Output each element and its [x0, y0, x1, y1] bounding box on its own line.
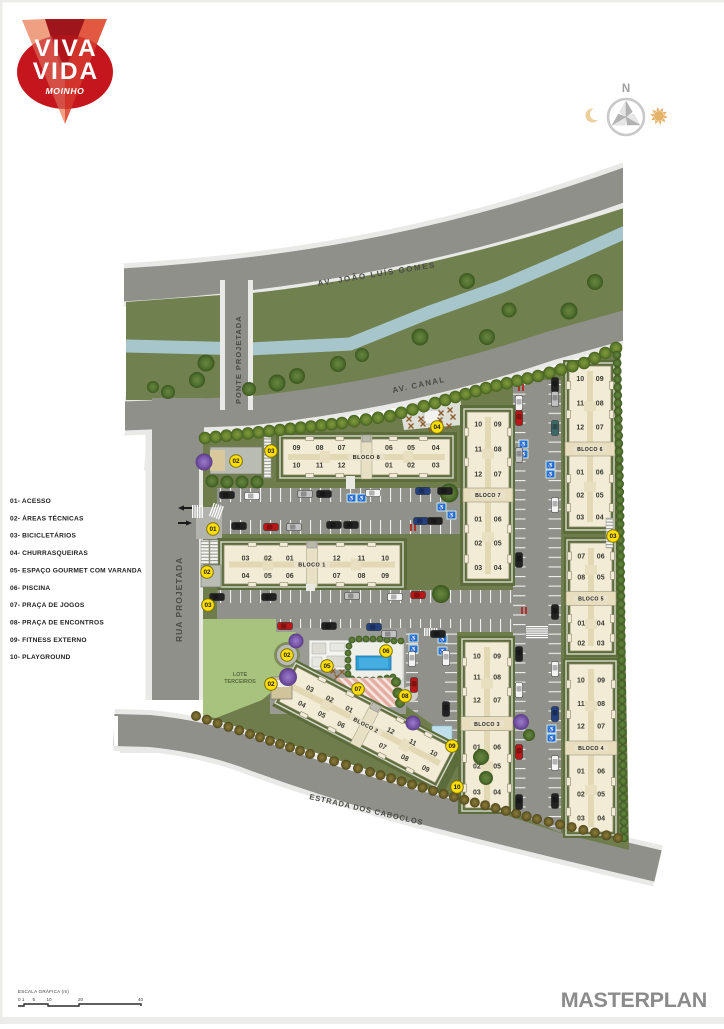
svg-text:10: 10	[381, 556, 389, 563]
svg-text:LOTE: LOTE	[233, 672, 248, 678]
svg-text:05: 05	[264, 573, 272, 580]
svg-text:01: 01	[385, 462, 393, 469]
svg-text:N: N	[622, 83, 630, 95]
svg-text:02: 02	[577, 640, 585, 647]
svg-text:05: 05	[596, 492, 604, 499]
svg-text:12: 12	[577, 723, 585, 730]
svg-text:BLOCO 1: BLOCO 1	[298, 563, 325, 569]
svg-text:04: 04	[433, 424, 441, 431]
svg-text:11: 11	[577, 400, 585, 407]
svg-text:04: 04	[597, 620, 605, 627]
svg-text:5: 5	[33, 997, 36, 1002]
svg-text:06: 06	[597, 553, 605, 560]
svg-text:12: 12	[473, 697, 481, 704]
svg-text:BLOCO 6: BLOCO 6	[577, 447, 603, 453]
svg-text:07: 07	[493, 697, 501, 704]
svg-text:20: 20	[78, 997, 84, 1002]
svg-text:02: 02	[267, 681, 275, 688]
svg-text:♿: ♿	[410, 635, 417, 642]
svg-text:01: 01	[286, 556, 294, 563]
svg-text:09- FITNESS EXTERNO: 09- FITNESS EXTERNO	[10, 637, 87, 644]
svg-text:04: 04	[494, 565, 502, 572]
svg-text:02- ÁREAS TÉCNICAS: 02- ÁREAS TÉCNICAS	[10, 513, 84, 522]
svg-text:♿: ♿	[547, 462, 554, 469]
svg-text:10: 10	[576, 376, 584, 383]
svg-text:10: 10	[293, 462, 301, 469]
svg-text:01: 01	[576, 469, 584, 476]
svg-text:♿: ♿	[548, 735, 555, 742]
svg-text:03: 03	[432, 462, 440, 469]
svg-text:11: 11	[358, 556, 366, 563]
svg-text:05: 05	[493, 763, 501, 770]
svg-text:12: 12	[576, 424, 584, 431]
svg-text:03: 03	[267, 448, 275, 455]
svg-text:BLOCO 8: BLOCO 8	[353, 455, 380, 461]
svg-text:12: 12	[474, 471, 482, 478]
svg-text:♿: ♿	[348, 495, 355, 502]
svg-text:0 1: 0 1	[18, 997, 25, 1002]
svg-text:06: 06	[596, 469, 604, 476]
svg-text:09: 09	[448, 743, 456, 750]
svg-text:10: 10	[577, 677, 585, 684]
svg-text:05: 05	[494, 540, 502, 547]
svg-text:11: 11	[473, 674, 481, 681]
svg-text:07: 07	[596, 424, 604, 431]
svg-text:08: 08	[493, 674, 501, 681]
svg-text:10- PLAYGROUND: 10- PLAYGROUND	[10, 654, 70, 661]
svg-text:06: 06	[385, 445, 393, 452]
svg-text:♿: ♿	[438, 504, 445, 511]
svg-text:06: 06	[286, 573, 294, 580]
svg-text:02: 02	[407, 462, 415, 469]
svg-text:09: 09	[293, 445, 301, 452]
svg-text:03: 03	[609, 533, 617, 540]
svg-text:PONTE PROJETADA: PONTE PROJETADA	[234, 315, 243, 404]
svg-text:10: 10	[47, 997, 53, 1002]
svg-text:01: 01	[577, 768, 585, 775]
svg-text:04: 04	[432, 445, 440, 452]
svg-text:12: 12	[333, 556, 341, 563]
svg-text:01: 01	[474, 516, 482, 523]
svg-text:08: 08	[358, 573, 366, 580]
svg-text:♿: ♿	[358, 495, 365, 502]
svg-text:08: 08	[401, 693, 409, 700]
svg-text:ESCALA GRÁFICA (m): ESCALA GRÁFICA (m)	[18, 988, 69, 994]
svg-text:04: 04	[596, 514, 604, 521]
svg-text:02: 02	[576, 492, 584, 499]
svg-text:07: 07	[354, 686, 362, 693]
svg-text:08- PRAÇA DE ENCONTROS: 08- PRAÇA DE ENCONTROS	[10, 620, 104, 627]
svg-text:06- PISCINA: 06- PISCINA	[10, 585, 50, 592]
svg-text:10: 10	[474, 421, 482, 428]
svg-text:12: 12	[338, 462, 346, 469]
svg-text:06: 06	[597, 768, 605, 775]
svg-text:11: 11	[316, 462, 324, 469]
svg-text:♿: ♿	[520, 441, 527, 448]
svg-text:♿: ♿	[548, 726, 555, 733]
svg-text:08: 08	[577, 574, 585, 581]
svg-text:11: 11	[475, 446, 483, 453]
svg-text:03: 03	[242, 556, 250, 563]
svg-text:BLOCO 4: BLOCO 4	[578, 746, 604, 752]
svg-text:03: 03	[597, 640, 605, 647]
svg-text:VIDA: VIDA	[33, 58, 100, 85]
svg-text:MOINHO: MOINHO	[46, 86, 85, 96]
svg-text:MASTERPLAN: MASTERPLAN	[561, 988, 707, 1012]
svg-text:09: 09	[494, 421, 502, 428]
svg-text:07- PRAÇA DE JOGOS: 07- PRAÇA DE JOGOS	[10, 602, 85, 609]
svg-text:05- ESPAÇO GOURMET COM VAR: 05- ESPAÇO GOURMET COM VARANDA	[10, 567, 142, 574]
svg-text:RUA PROJETADA: RUA PROJETADA	[174, 557, 184, 642]
svg-text:04- CHURRASQUEIRAS: 04- CHURRASQUEIRAS	[10, 550, 88, 557]
svg-text:05: 05	[597, 791, 605, 798]
svg-text:07: 07	[494, 471, 502, 478]
svg-text:TERCEIROS: TERCEIROS	[224, 679, 256, 685]
svg-text:03: 03	[473, 789, 481, 796]
svg-text:07: 07	[597, 723, 605, 730]
svg-text:09: 09	[596, 376, 604, 383]
svg-text:02: 02	[474, 540, 482, 547]
svg-text:05: 05	[407, 445, 415, 452]
svg-text:08: 08	[597, 701, 605, 708]
svg-text:05: 05	[597, 574, 605, 581]
svg-text:02: 02	[577, 791, 585, 798]
svg-text:40: 40	[138, 997, 144, 1002]
svg-text:05: 05	[323, 663, 331, 670]
svg-text:03: 03	[204, 602, 212, 609]
svg-text:02: 02	[264, 556, 272, 563]
svg-text:04: 04	[597, 815, 605, 822]
svg-text:02: 02	[232, 458, 240, 465]
svg-text:03- BICICLETÁRIOS: 03- BICICLETÁRIOS	[10, 531, 76, 540]
svg-text:10: 10	[473, 653, 481, 660]
svg-text:09: 09	[381, 573, 389, 580]
svg-text:01- ACESSO: 01- ACESSO	[10, 498, 51, 505]
svg-text:08: 08	[596, 400, 604, 407]
svg-text:BLOCO 5: BLOCO 5	[578, 597, 604, 603]
svg-text:03: 03	[577, 815, 585, 822]
svg-text:♿: ♿	[448, 512, 455, 519]
svg-text:06: 06	[382, 648, 390, 655]
svg-text:♿: ♿	[547, 471, 554, 478]
svg-text:09: 09	[597, 677, 605, 684]
svg-text:03: 03	[474, 565, 482, 572]
svg-text:BLOCO 3: BLOCO 3	[474, 722, 500, 728]
svg-text:03: 03	[576, 514, 584, 521]
svg-text:01: 01	[209, 526, 217, 533]
svg-text:02: 02	[203, 569, 211, 576]
svg-text:08: 08	[316, 445, 324, 452]
svg-text:02: 02	[283, 652, 291, 659]
svg-text:06: 06	[493, 744, 501, 751]
svg-text:BLOCO 7: BLOCO 7	[475, 493, 501, 499]
svg-text:07: 07	[577, 553, 585, 560]
svg-text:07: 07	[333, 573, 341, 580]
svg-text:11: 11	[577, 701, 585, 708]
svg-text:07: 07	[338, 445, 346, 452]
svg-text:04: 04	[242, 573, 250, 580]
svg-text:10: 10	[453, 784, 461, 791]
svg-text:04: 04	[493, 789, 501, 796]
svg-text:08: 08	[494, 446, 502, 453]
svg-text:06: 06	[494, 516, 502, 523]
svg-text:09: 09	[493, 653, 501, 660]
svg-text:01: 01	[577, 620, 585, 627]
